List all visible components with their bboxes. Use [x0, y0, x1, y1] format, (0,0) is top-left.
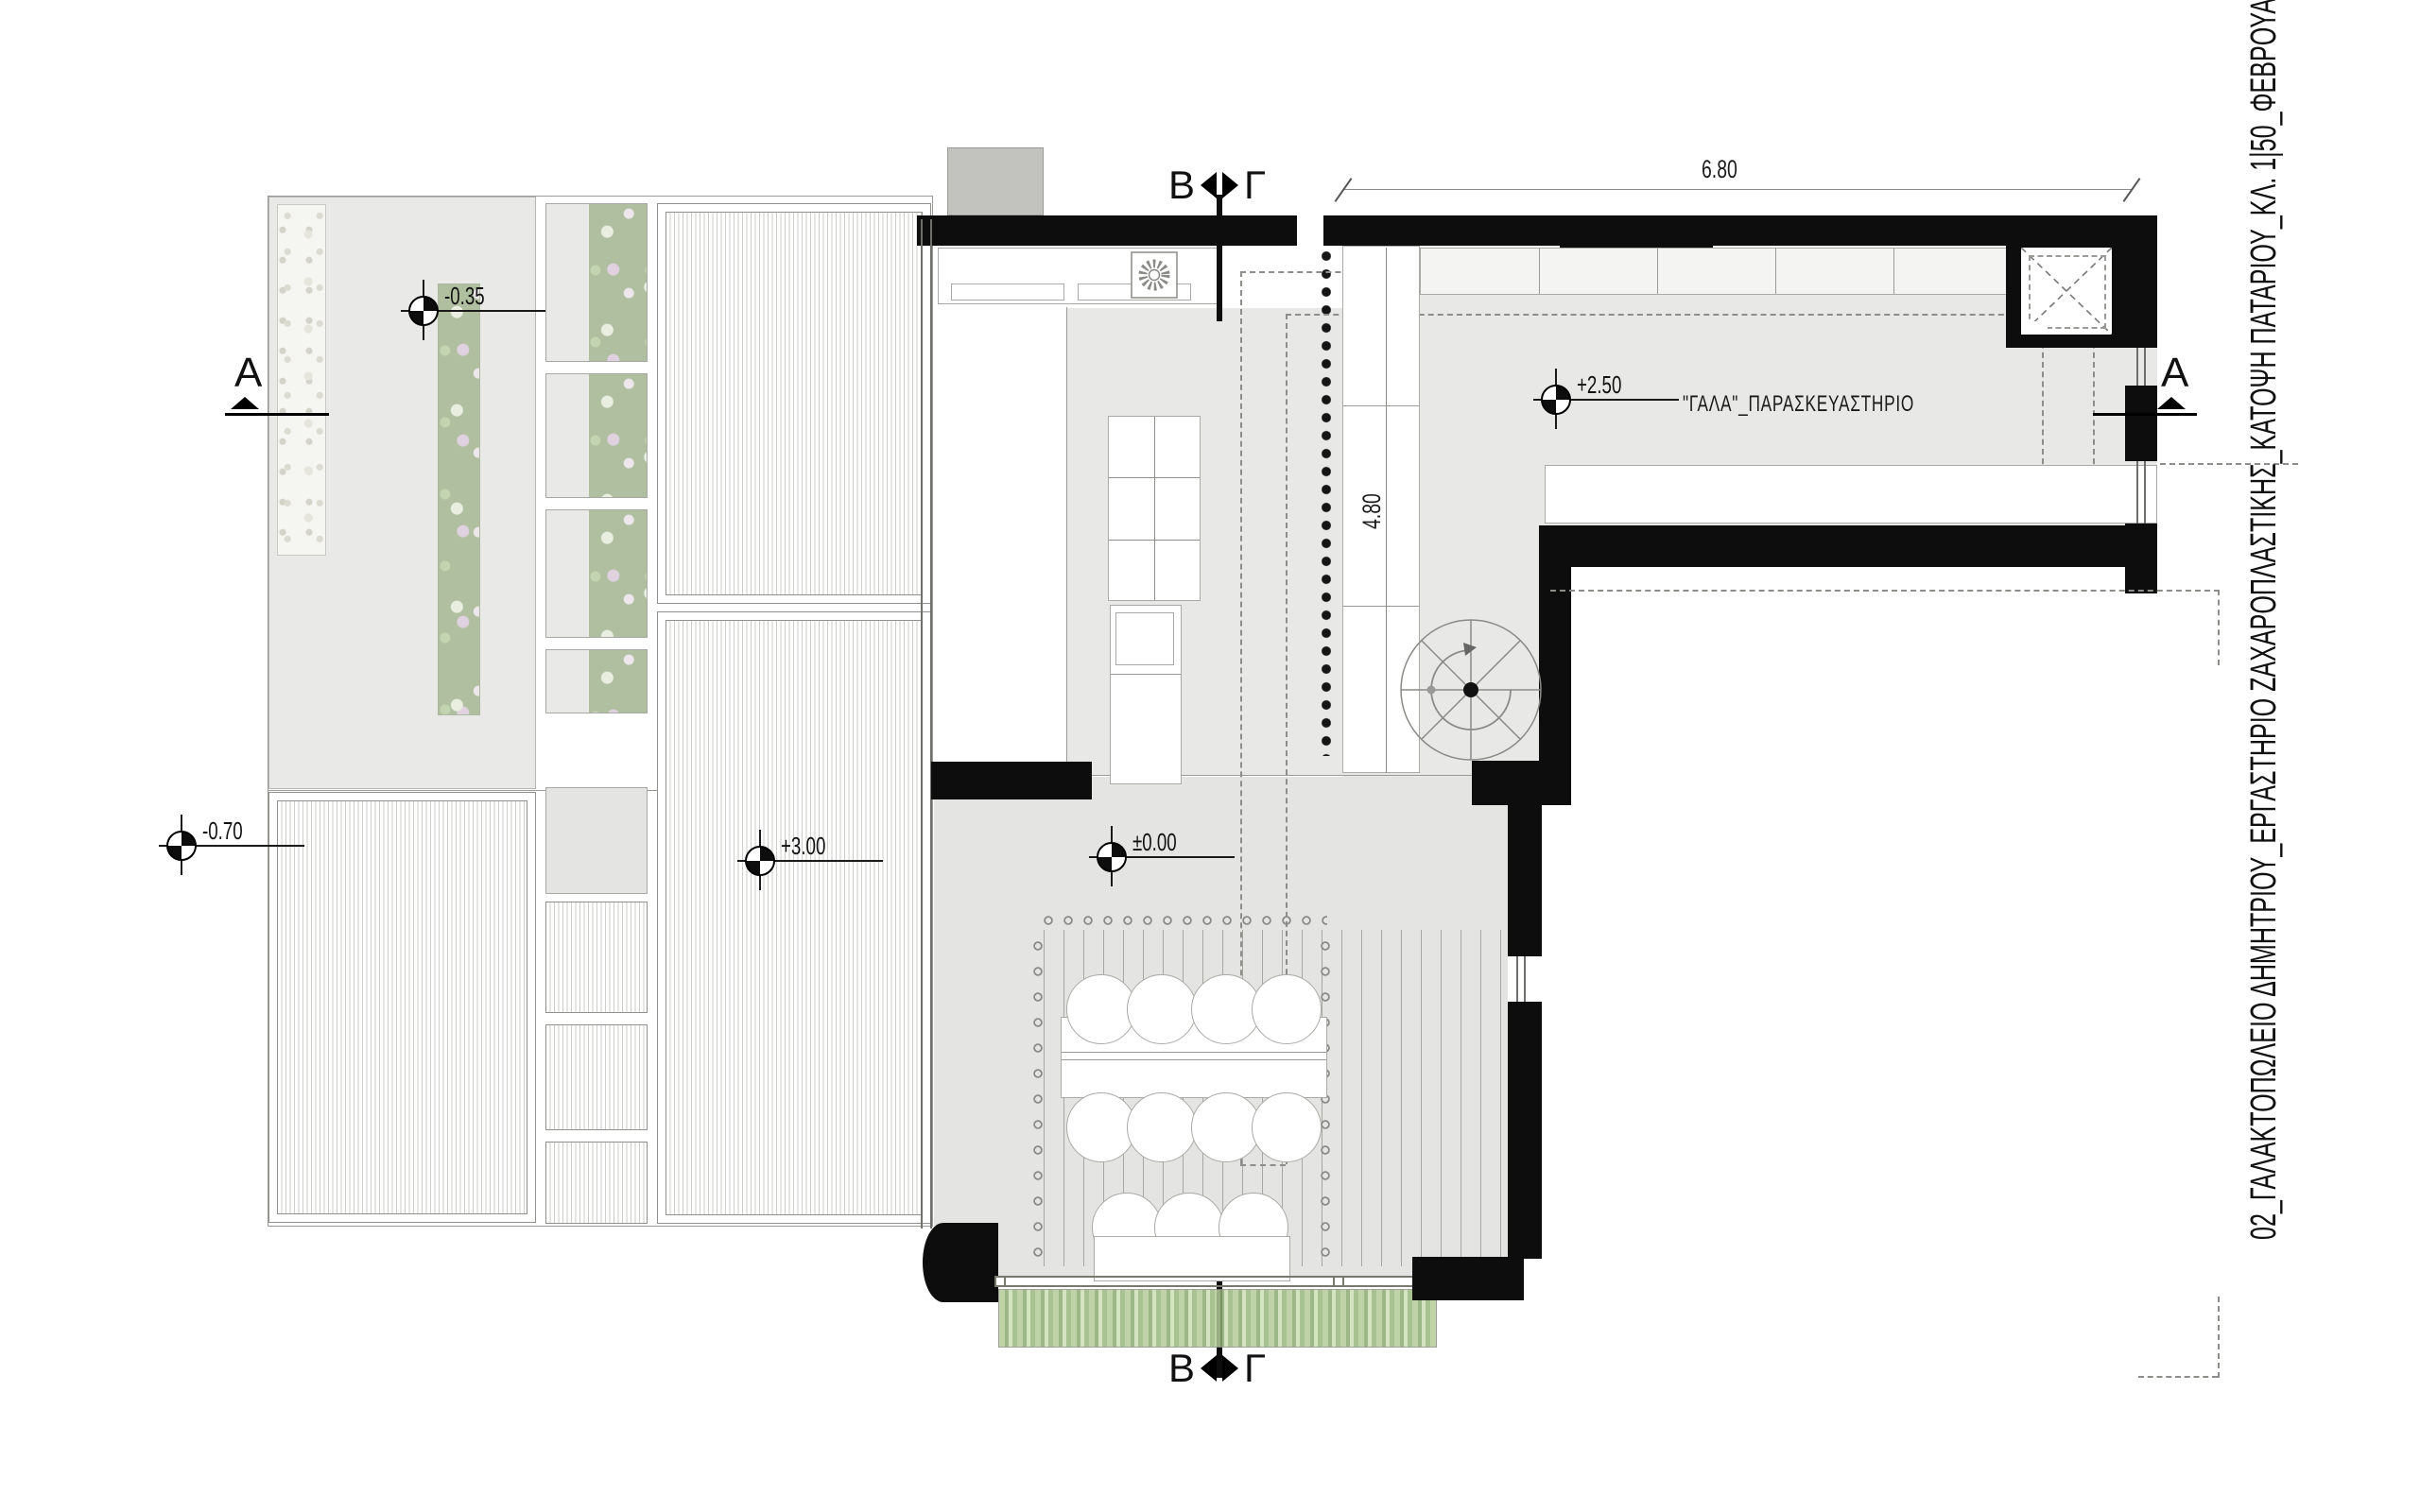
- counter-division: [1775, 249, 1776, 294]
- level-value-text: +2.50: [1577, 370, 1621, 400]
- dashed-ref-south: [1550, 590, 2220, 592]
- dimension-text: 4.80: [1357, 493, 1387, 529]
- counter-divider: [1111, 674, 1181, 675]
- counter-division: [1343, 405, 1419, 406]
- column-wall-chunk: [962, 1223, 998, 1302]
- level-marker-mezzanine: +2.50: [1533, 369, 1685, 429]
- curtain-hooks-row: [1044, 915, 1327, 926]
- section-arrow-icon: [1222, 172, 1238, 198]
- level-symbol-icon: [408, 296, 439, 326]
- drawing-title: 02_ΓΑΛΑΚΤΟΠΩΛΕΙΟ ΔΗΜΗΤΡΙΟΥ_ΕΡΓΑΣΤΗΡΙΟ ΖΑ…: [2244, 0, 2285, 1240]
- green-planting-strip: [438, 283, 480, 715]
- section-letter-b: Β: [1168, 1346, 1195, 1391]
- dimension-value-side: 4.80: [1357, 479, 1387, 529]
- cafe-table: [1252, 974, 1322, 1044]
- curtain-hooks-right: [1320, 941, 1331, 1272]
- garden-box-1: [545, 203, 648, 362]
- level-value: -0.70: [202, 816, 258, 846]
- corridor-edge-line: [1066, 307, 1067, 775]
- section-letter-g: Γ: [1244, 163, 1266, 208]
- shop-counter: [1110, 605, 1182, 784]
- section-arrow-icon: [1222, 1355, 1238, 1382]
- cafe-table: [1191, 1092, 1261, 1162]
- section-marker-a-left: Α: [225, 355, 329, 416]
- rail-post: [994, 1276, 1006, 1287]
- dimension-text: 6.80: [1702, 155, 1737, 184]
- dimension-tick: [1335, 178, 1353, 202]
- stair-wall-chunk: [1472, 761, 1541, 805]
- section-arrow-icon: [2157, 397, 2186, 409]
- level-marker-ground: ±0.00: [1089, 826, 1240, 886]
- cafe-table: [1191, 974, 1261, 1044]
- section-marker-bg-bottom: Β Γ: [1168, 1346, 1266, 1391]
- cafe-table: [1127, 1092, 1197, 1162]
- roof-panel-lower: [657, 611, 931, 1224]
- counter-division: [1343, 606, 1419, 607]
- floor-plan-canvas: -0.35 Α +3.00 -0.70: [0, 0, 2420, 1512]
- entry-canopy: [947, 147, 1044, 215]
- dashed-ref-south-v: [2218, 590, 2220, 665]
- counter-division: [1893, 249, 1894, 294]
- section-arrow-icon: [231, 397, 259, 409]
- shop-window: [1108, 416, 1201, 601]
- level-marker-street: -0.70: [159, 815, 310, 875]
- shelf-unit-1: [951, 283, 1064, 301]
- garden-box-plants: [589, 510, 647, 637]
- southeast-wall-chunk: [1412, 1257, 1524, 1300]
- level-value-text: -0.35: [444, 282, 485, 311]
- level-value: -0.35: [444, 282, 500, 311]
- top-wall-opening: [1297, 214, 1323, 248]
- section-letter: Α: [2161, 350, 2188, 397]
- level-symbol-icon: [1541, 385, 1571, 415]
- dashed-ref-corner-h: [2138, 1376, 2218, 1378]
- window-transom: [1109, 540, 1200, 541]
- section-arrow-icon: [1201, 172, 1217, 198]
- roof-stripes: [665, 212, 923, 595]
- roof-stripes: [665, 620, 923, 1215]
- ceiling-fan-icon: [1131, 251, 1178, 299]
- garden-box-plants: [589, 650, 647, 713]
- left-glazing-wall: [921, 219, 932, 1228]
- table-edge-line: [1062, 1059, 1326, 1060]
- garden-box-plants: [589, 204, 647, 361]
- garden-box-3: [545, 509, 648, 638]
- cafe-table: [1127, 974, 1197, 1044]
- counter-division: [1657, 249, 1658, 294]
- worktop-counter-lower: [1545, 465, 2157, 524]
- cafe-table: [1066, 1092, 1136, 1162]
- dotted-column-line: [1322, 248, 1331, 756]
- level-marker-courtyard: -0.35: [401, 280, 552, 340]
- terrace-rail: [998, 1276, 1437, 1287]
- section-line-bg-top: [1217, 195, 1222, 321]
- cafe-east-wall-lower: [1508, 1002, 1542, 1259]
- window-mullion: [1154, 417, 1155, 600]
- top-exterior-wall: [917, 215, 2157, 246]
- cafe-table: [1066, 974, 1136, 1044]
- section-line: [225, 413, 329, 416]
- garden-box-4: [545, 649, 648, 713]
- level-marker-roof: +3.00: [737, 830, 889, 890]
- window-bench: [1094, 1236, 1290, 1281]
- level-value-text: +3.00: [781, 832, 825, 861]
- section-line: [2093, 413, 2197, 416]
- room-label: "ΓΑΛΑ"_ΠΑΡΑΣΚΕΥΑΣΤΗΡΙΟ: [1683, 391, 2004, 418]
- garden-box-2: [545, 373, 648, 498]
- level-value: +2.50: [1577, 370, 1639, 400]
- roof-panel-upper: [657, 203, 931, 604]
- level-value-text: ±0.00: [1132, 828, 1177, 857]
- level-symbol-icon: [166, 831, 197, 861]
- dimension-line-top: [1344, 189, 2133, 190]
- cafe-east-window: [1516, 956, 1526, 1002]
- bamboo-planting-strip: [998, 1289, 1437, 1348]
- counter-division: [1539, 249, 1540, 294]
- curtain-hooks-left: [1032, 941, 1044, 1272]
- cafe-east-wall-upper: [1508, 805, 1542, 956]
- section-marker-bg-top: Β Γ: [1168, 163, 1266, 208]
- level-value: ±0.00: [1132, 828, 1194, 857]
- round-column: [923, 1223, 964, 1302]
- mezzanine-south-wall: [1539, 525, 2157, 567]
- level-symbol-icon: [745, 846, 775, 876]
- dimension-value-top: 6.80: [1702, 155, 1752, 184]
- dimension-tick: [2123, 178, 2141, 202]
- deck-segment-2: [545, 1024, 648, 1130]
- spiral-stair-icon: [1397, 616, 1545, 764]
- deck-stripes: [277, 800, 527, 1214]
- counter-inset: [1115, 612, 1174, 665]
- cafe-table: [1252, 1092, 1322, 1162]
- east-glazing-2: [2136, 461, 2146, 524]
- level-value: +3.00: [781, 832, 843, 861]
- table-edge-line: [1062, 1052, 1326, 1053]
- section-letter-g: Γ: [1244, 1346, 1266, 1391]
- section-marker-a-right: Α: [2093, 355, 2197, 416]
- section-letter: Α: [234, 350, 262, 397]
- section-arrow-icon: [1201, 1355, 1217, 1382]
- garden-box-plants: [589, 374, 647, 497]
- level-symbol-icon: [1097, 842, 1127, 872]
- section-letter-b: Β: [1168, 163, 1195, 208]
- room-label-text: "ΓΑΛΑ"_ΠΑΡΑΣΚΕΥΑΣΤΗΡΙΟ: [1683, 391, 1914, 418]
- level-value-text: -0.70: [202, 816, 243, 846]
- elevator-door-opening: [2021, 321, 2048, 335]
- terrace-landing: [545, 787, 648, 894]
- deck-segment-1: [545, 902, 648, 1013]
- cafe-north-wall-chunk: [931, 762, 1092, 799]
- east-wall-pier-3: [2125, 524, 2157, 593]
- window-transom: [1109, 477, 1200, 478]
- rail-post: [1333, 1276, 1344, 1287]
- dashed-ref-corner-v: [2218, 1297, 2220, 1378]
- deck-segment-3: [545, 1142, 648, 1224]
- elevator-clearance-dashed: [2029, 255, 2106, 329]
